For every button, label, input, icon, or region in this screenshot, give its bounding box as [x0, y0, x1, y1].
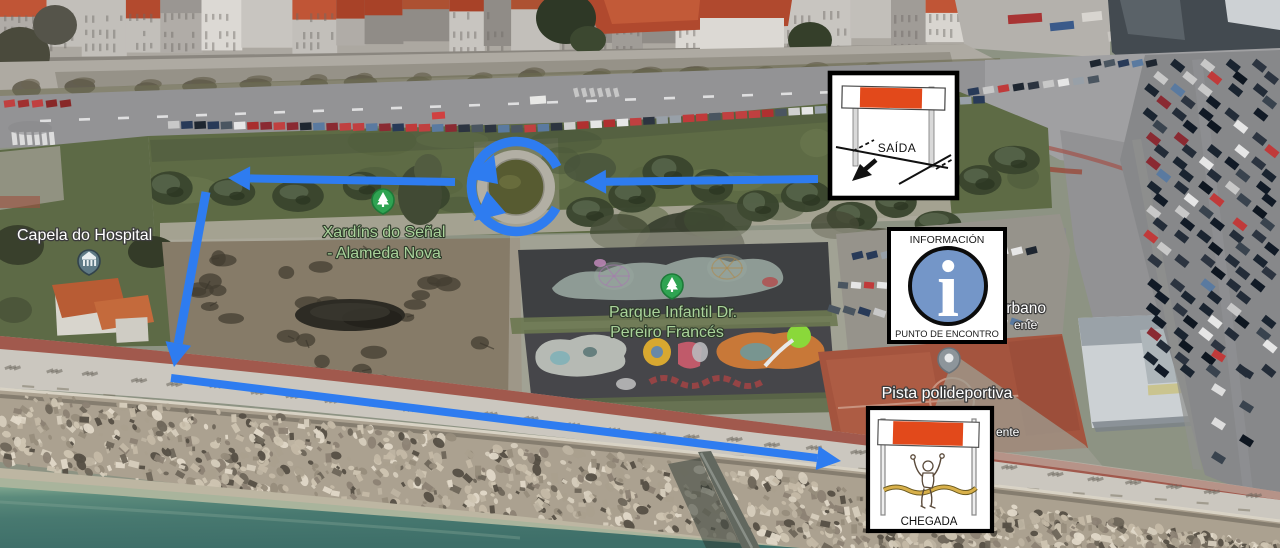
svg-text:Pereiro Francés: Pereiro Francés: [610, 324, 724, 341]
svg-text:ente: ente: [996, 425, 1020, 439]
svg-text:- Alameda Nova: - Alameda Nova: [327, 245, 441, 262]
svg-text:Capela do Hospital: Capela do Hospital: [17, 227, 152, 244]
svg-text:Xardíns do Señal: Xardíns do Señal: [323, 224, 446, 241]
svg-text:i: i: [937, 246, 959, 334]
svg-text:SAÍDA: SAÍDA: [878, 140, 917, 155]
svg-text:Pista polideportiva: Pista polideportiva: [882, 385, 1013, 402]
svg-text:PUNTO DE ENCONTRO: PUNTO DE ENCONTRO: [895, 329, 999, 339]
svg-text:INFORMACIÓN: INFORMACIÓN: [910, 233, 985, 246]
svg-text:CHEGADA: CHEGADA: [901, 516, 958, 528]
svg-text:Parque Infantil Dr.: Parque Infantil Dr.: [609, 304, 737, 321]
svg-text:ente: ente: [1014, 318, 1038, 332]
